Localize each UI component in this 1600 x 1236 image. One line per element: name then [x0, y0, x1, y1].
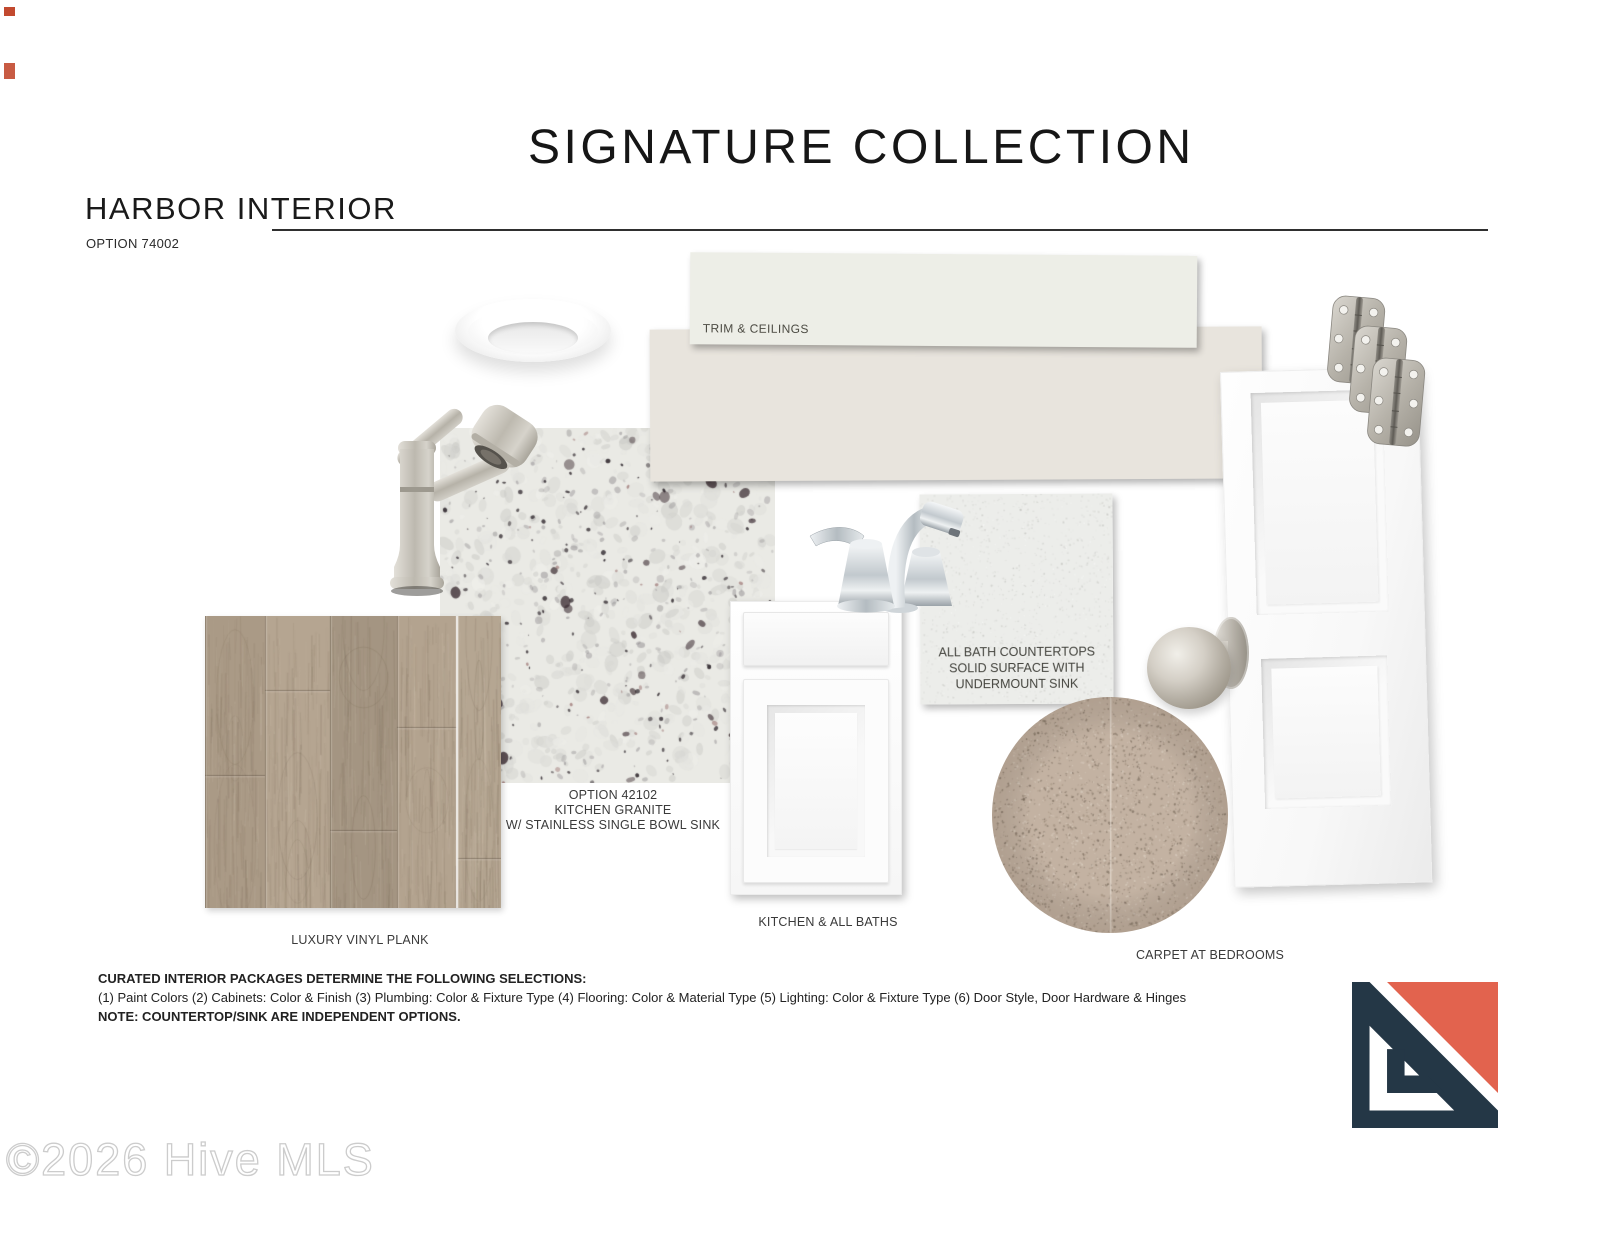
bath-faucet-left-handle — [810, 527, 895, 612]
recessed-light-sample — [455, 299, 611, 362]
footer-selections: (1) Paint Colors (2) Cabinets: Color & F… — [98, 989, 1498, 1006]
vinyl-flooring-sample — [205, 616, 501, 908]
footer-note: NOTE: COUNTERTOP/SINK ARE INDEPENDENT OP… — [98, 1008, 1498, 1025]
design-board-page: SIGNATURE COLLECTION HARBOR INTERIOR OPT… — [0, 0, 1600, 1236]
bath-faucet-sample — [800, 478, 1000, 618]
cabinet-door-panel — [767, 705, 865, 857]
vinyl-texture — [205, 616, 501, 908]
bath-faucet-spout-tip — [918, 500, 967, 538]
paint-swatch-trim: TRIM & CEILINGS — [690, 252, 1198, 348]
bath-faucet-right-handle — [900, 547, 952, 606]
paint-swatch-wall — [650, 326, 1263, 481]
brokerage-logo — [1352, 982, 1498, 1128]
title-underline — [272, 229, 1488, 231]
cabinet-door-front — [743, 679, 889, 883]
option-number: OPTION 74002 — [86, 236, 179, 251]
vinyl-flooring-label: LUXURY VINYL PLANK — [210, 933, 510, 948]
collection-title: HARBOR INTERIOR — [85, 191, 397, 227]
hinge-front — [1367, 357, 1426, 447]
corner-mark — [4, 63, 15, 79]
carpet-sample — [992, 697, 1228, 933]
cabinet-label: KITCHEN & ALL BATHS — [728, 915, 928, 930]
page-title: SIGNATURE COLLECTION — [528, 120, 1195, 175]
footer-notes: CURATED INTERIOR PACKAGES DETERMINE THE … — [98, 970, 1498, 1025]
carpet-texture — [992, 697, 1228, 933]
cabinet-sample — [730, 601, 902, 895]
door-knob-sample — [1147, 627, 1231, 709]
kitchen-granite-label: OPTION 42102 KITCHEN GRANITE W/ STAINLES… — [463, 788, 763, 833]
door-hinges-sample — [1320, 288, 1440, 458]
corner-mark — [4, 7, 15, 16]
footer-heading: CURATED INTERIOR PACKAGES DETERMINE THE … — [98, 970, 1498, 987]
cabinet-drawer-front — [743, 612, 889, 666]
carpet-label: CARPET AT BEDROOMS — [1080, 948, 1340, 963]
bath-countertop-label: ALL BATH COUNTERTOPS SOLID SURFACE WITH … — [920, 643, 1113, 692]
faucet-body — [390, 441, 444, 596]
paint-swatch-trim-label: TRIM & CEILINGS — [703, 321, 809, 336]
light-lens — [488, 322, 578, 354]
mls-watermark: ©2026 Hive MLS — [6, 1134, 375, 1186]
kitchen-faucet-sample — [372, 385, 547, 600]
door-bottom-panel — [1261, 655, 1391, 808]
